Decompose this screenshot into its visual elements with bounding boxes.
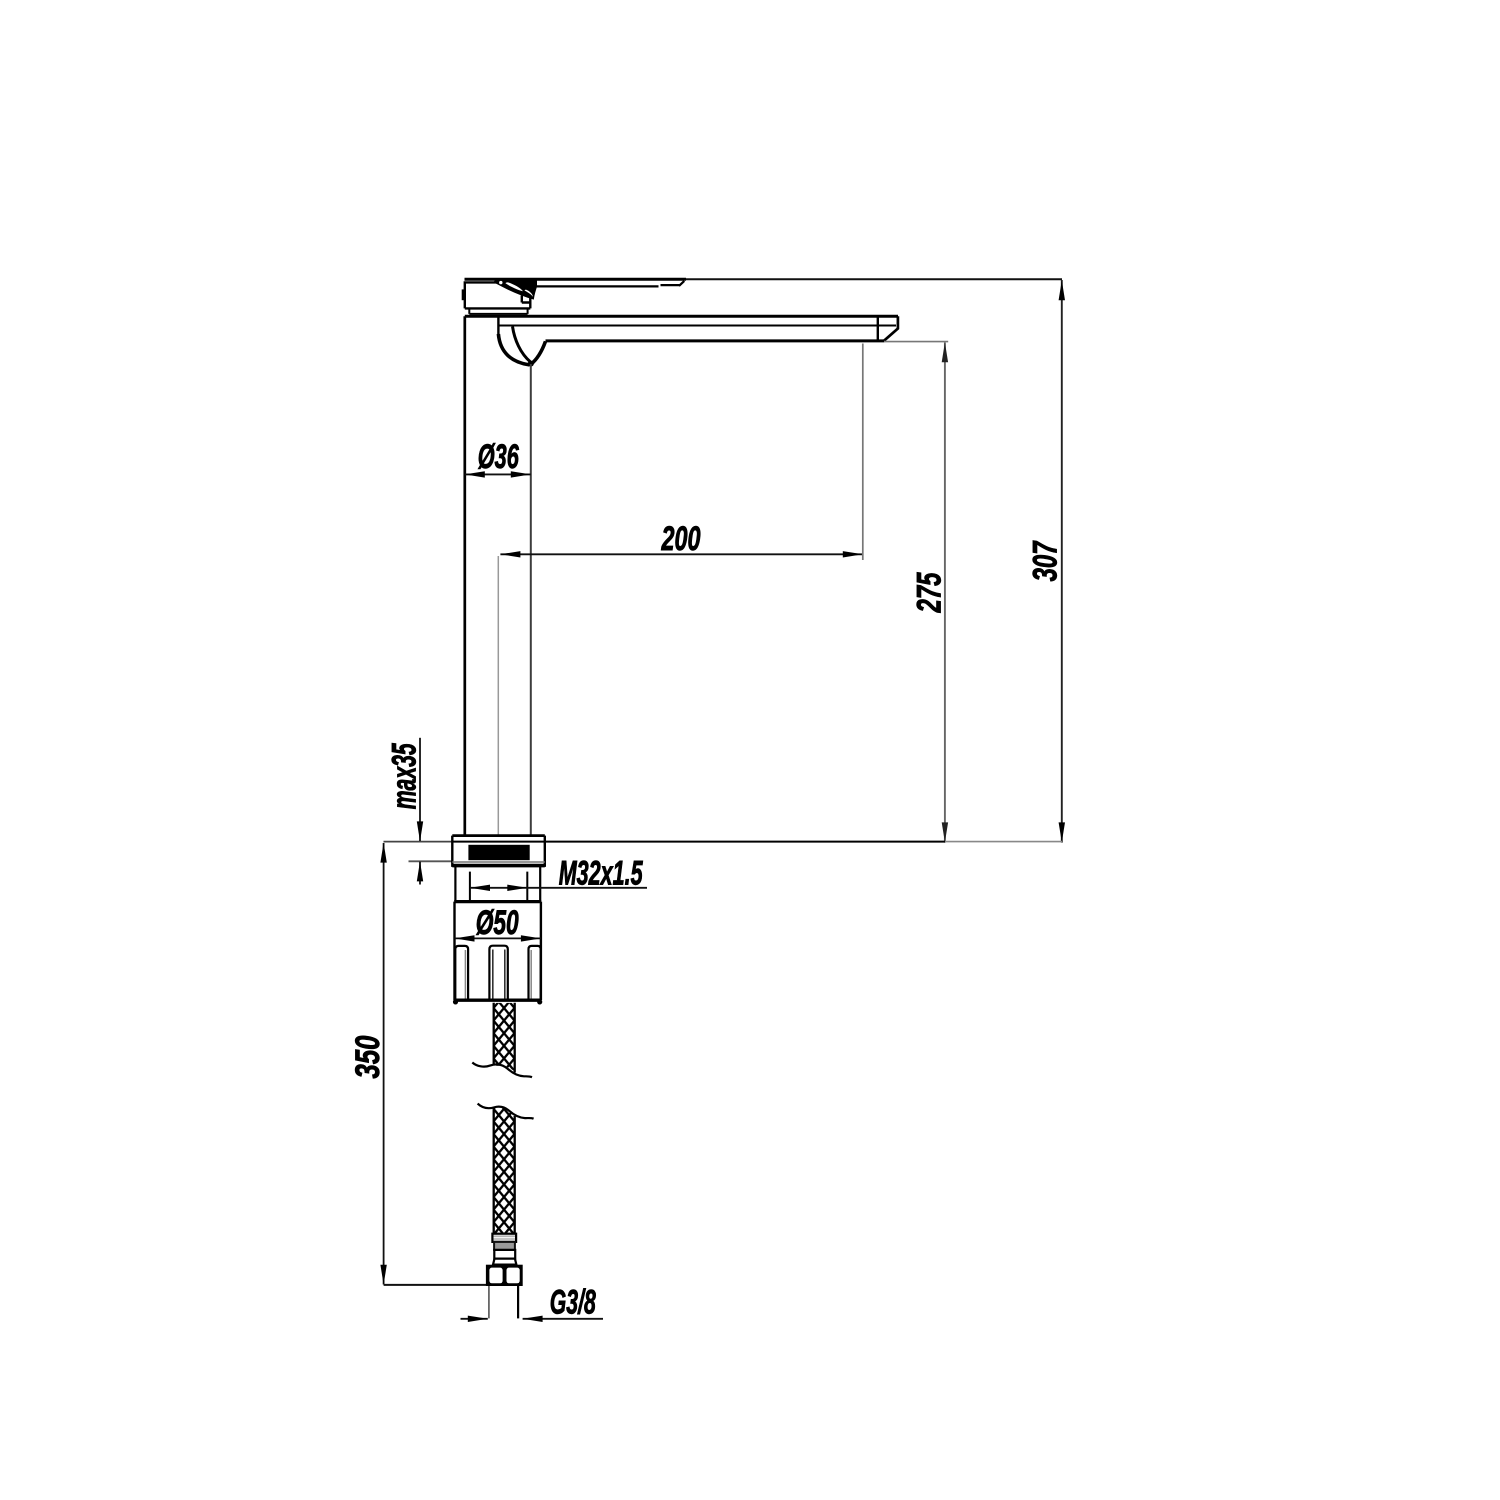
svg-text:275: 275 (911, 572, 949, 613)
svg-text:307: 307 (1027, 540, 1065, 581)
svg-text:M32x1.5: M32x1.5 (559, 854, 644, 892)
svg-text:max35: max35 (385, 743, 423, 810)
svg-text:200: 200 (661, 520, 701, 558)
svg-text:350: 350 (349, 1035, 387, 1078)
svg-text:Ø50: Ø50 (476, 904, 519, 942)
svg-text:G3/8: G3/8 (550, 1284, 596, 1322)
svg-text:Ø36: Ø36 (478, 438, 520, 476)
